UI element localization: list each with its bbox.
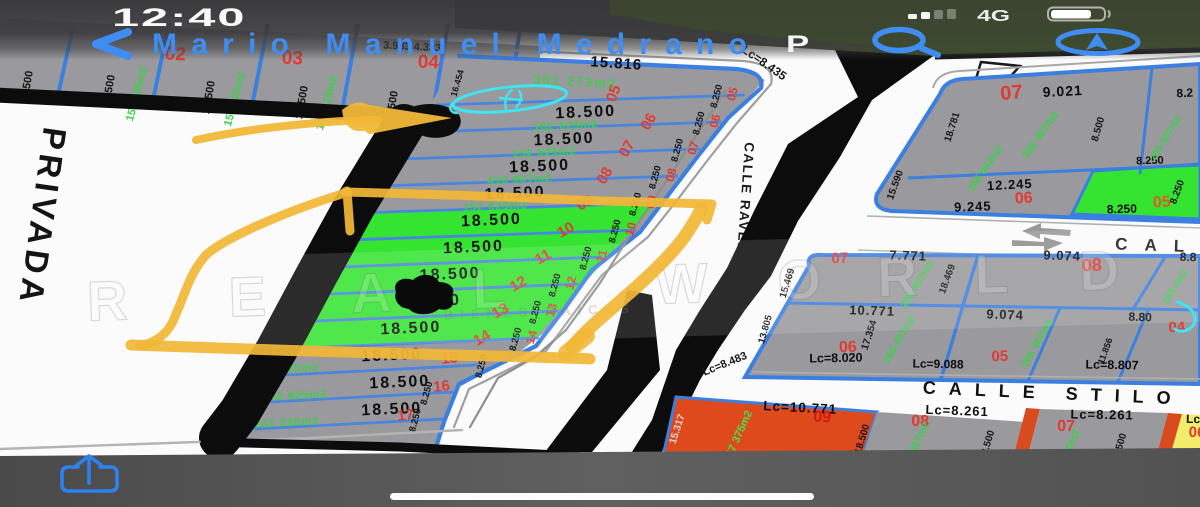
svg-text:8.250: 8.250 — [1107, 201, 1138, 216]
svg-text:8.2: 8.2 — [1176, 86, 1194, 101]
svg-text:9.245: 9.245 — [954, 198, 992, 214]
svg-text:09: 09 — [813, 409, 832, 427]
svg-text:Lc=9.088: Lc=9.088 — [912, 357, 964, 372]
svg-text:4G: 4G — [977, 7, 1010, 25]
svg-text:05: 05 — [991, 348, 1008, 366]
svg-text:L: L — [973, 241, 1009, 305]
svg-text:06: 06 — [1189, 424, 1200, 441]
svg-text:16: 16 — [432, 377, 450, 396]
svg-text:Lc=8.807: Lc=8.807 — [1085, 358, 1138, 373]
svg-text:06: 06 — [1014, 190, 1033, 208]
svg-text:Mario Manuel Medrano: Mario Manuel Medrano — [152, 28, 761, 61]
svg-text:Lc=8.261: Lc=8.261 — [925, 402, 989, 419]
svg-text:D: D — [1078, 238, 1121, 302]
svg-text:O: O — [776, 247, 822, 311]
svg-text:Lc=8.020: Lc=8.020 — [809, 351, 862, 366]
svg-text:P: P — [786, 31, 809, 57]
svg-text:07: 07 — [999, 81, 1023, 105]
svg-text:E: E — [228, 264, 268, 328]
svg-text:Lc=8.261: Lc=8.261 — [1070, 406, 1134, 422]
svg-text:R: R — [86, 268, 129, 332]
svg-text:9.021: 9.021 — [1042, 82, 1083, 100]
svg-text:18.500: 18.500 — [461, 211, 523, 231]
svg-text:R: R — [876, 244, 919, 308]
svg-text:A: A — [350, 260, 393, 324]
